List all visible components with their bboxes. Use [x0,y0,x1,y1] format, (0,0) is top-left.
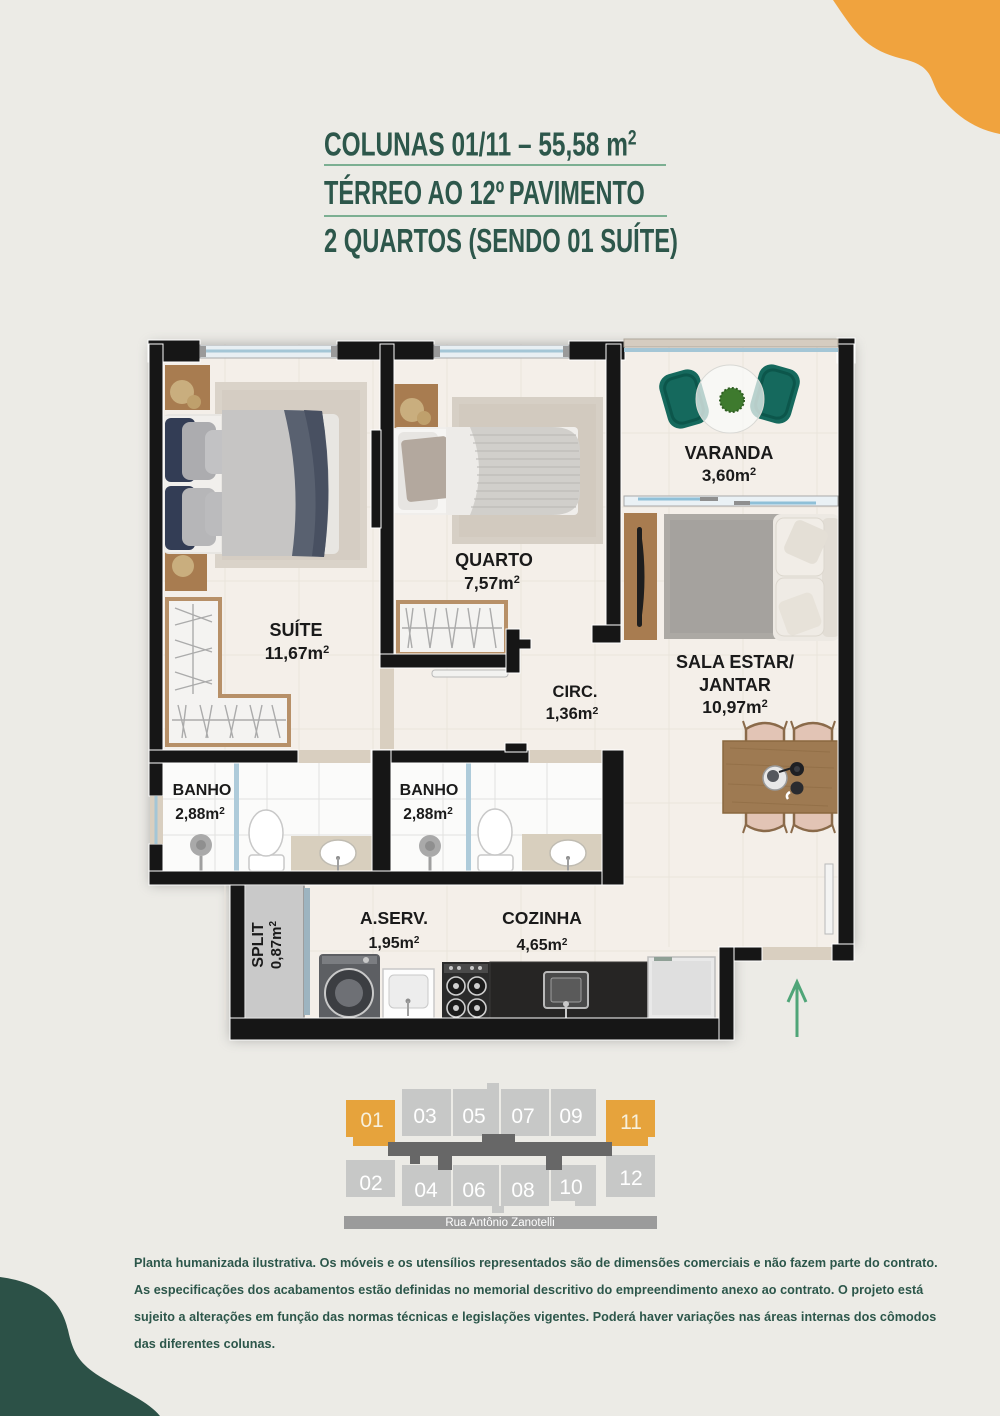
svg-text:11: 11 [620,1111,642,1134]
svg-text:05: 05 [462,1105,485,1128]
svg-text:1,36m2: 1,36m2 [546,705,599,723]
svg-text:BANHO: BANHO [400,782,459,799]
svg-text:0,87m2: 0,87m2 [268,921,285,970]
svg-text:SUÍTE: SUÍTE [269,619,322,640]
svg-text:das diferentes colunas.: das diferentes colunas. [134,1337,275,1351]
svg-text:As especificações dos acabamen: As especificações dos acabamentos estão … [134,1283,924,1297]
svg-text:1,95m2: 1,95m2 [369,935,420,952]
svg-text:JANTAR: JANTAR [699,675,771,695]
svg-text:TÉRREO AO 12º PAVIMENTO: TÉRREO AO 12º PAVIMENTO [324,173,645,212]
svg-text:2 QUARTOS (SENDO 01 SUÍTE): 2 QUARTOS (SENDO 01 SUÍTE) [324,221,678,260]
svg-text:COZINHA: COZINHA [502,908,582,928]
svg-text:03: 03 [413,1105,436,1128]
svg-text:2,88m2: 2,88m2 [175,806,225,823]
svg-text:12: 12 [619,1167,642,1190]
svg-text:11,67m2: 11,67m2 [265,643,330,663]
svg-text:7,57m2: 7,57m2 [464,573,520,593]
svg-text:Rua Antônio Zanotelli: Rua Antônio Zanotelli [445,1217,554,1229]
svg-text:4,65m2: 4,65m2 [517,937,568,954]
svg-text:10: 10 [559,1176,582,1199]
svg-text:02: 02 [359,1172,382,1195]
svg-text:3,60m2: 3,60m2 [702,466,756,485]
svg-text:COLUNAS 01/11 – 55,58 m2: COLUNAS 01/11 – 55,58 m2 [324,125,637,163]
svg-text:CIRC.: CIRC. [553,683,598,701]
svg-text:Planta humanizada ilustrativa.: Planta humanizada ilustrativa. Os móveis… [134,1256,938,1270]
svg-text:06: 06 [462,1179,485,1202]
svg-text:VARANDA: VARANDA [685,443,774,463]
svg-text:sujeito a alterações em função: sujeito a alterações em função das norma… [134,1310,936,1324]
svg-text:QUARTO: QUARTO [455,550,533,570]
svg-text:BANHO: BANHO [173,782,232,799]
svg-text:10,97m2: 10,97m2 [702,697,767,717]
svg-text:09: 09 [559,1105,582,1128]
svg-text:SPLIT: SPLIT [250,922,267,968]
svg-text:2,88m2: 2,88m2 [403,806,453,823]
svg-text:SALA ESTAR/: SALA ESTAR/ [676,652,794,672]
svg-text:04: 04 [414,1179,438,1202]
svg-text:01: 01 [360,1109,383,1132]
svg-text:A.SERV.: A.SERV. [360,908,428,928]
svg-text:08: 08 [511,1179,534,1202]
svg-text:07: 07 [511,1105,534,1128]
